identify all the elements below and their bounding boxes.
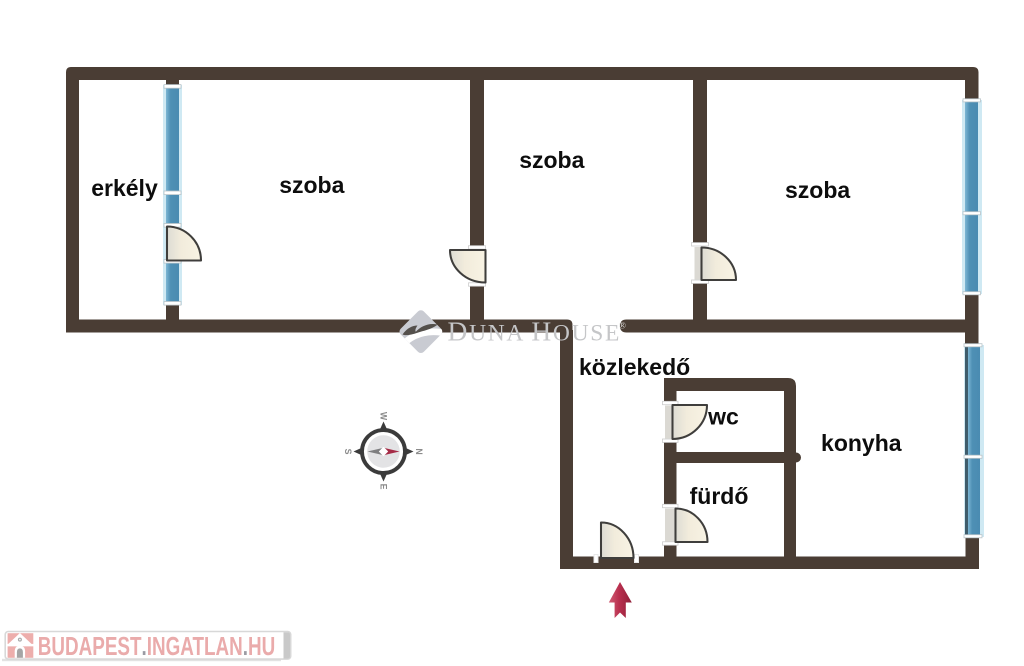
svg-text:wc: wc: [707, 404, 739, 430]
svg-text:szoba: szoba: [519, 147, 584, 173]
svg-text:DUNA HOUSE: DUNA HOUSE: [448, 316, 622, 347]
svg-text:E: E: [379, 484, 389, 490]
svg-text:S: S: [343, 449, 353, 455]
svg-text:szoba: szoba: [785, 177, 850, 203]
svg-text:®: ®: [619, 320, 626, 331]
svg-text:N: N: [414, 448, 424, 454]
svg-text:W: W: [379, 412, 389, 421]
svg-text:fürdő: fürdő: [690, 483, 749, 509]
svg-text:erkély: erkély: [91, 175, 158, 201]
svg-text:konyha: konyha: [821, 430, 902, 456]
svg-text:közlekedő: közlekedő: [579, 354, 690, 380]
svg-text:BUDAPEST.INGATLAN.HU: BUDAPEST.INGATLAN.HU: [38, 631, 275, 661]
svg-text:szoba: szoba: [279, 172, 344, 198]
